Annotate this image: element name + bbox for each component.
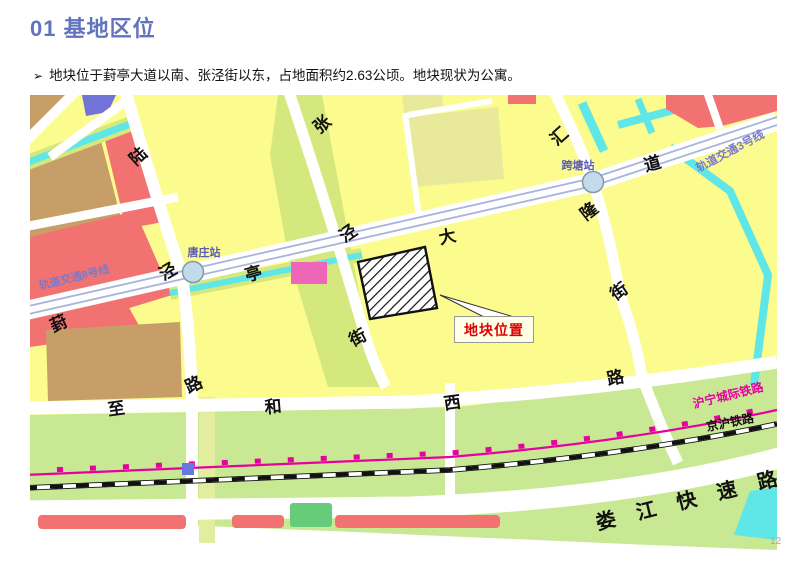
station-kuatang-label: 跨塘站 [562, 157, 595, 173]
purple-block-small [182, 463, 194, 475]
page-number: 12 [770, 536, 781, 547]
bullet-text: ➢地块位于葑亭大道以南、张泾街以东，占地面积约2.63公顷。地块现状为公寓。 [33, 64, 521, 84]
bullet-body: 地块位于葑亭大道以南、张泾街以东，占地面积约2.63公顷。地块现状为公寓。 [49, 68, 521, 83]
street-char: 和 [263, 392, 282, 418]
station-kuatang-icon [583, 172, 604, 193]
station-tangzhuang-label: 唐庄站 [188, 244, 221, 260]
street-char: 至 [106, 393, 126, 420]
site-location-map: 陆 泾 路 张 泾 街 汇 隆 街 葑 亭 大 道 至 和 西 路 唐庄站 跨塘… [30, 95, 777, 550]
page-title: 01 基地区位 [30, 11, 156, 43]
salmon-block [38, 515, 186, 529]
pink-block [291, 262, 327, 284]
station-tangzhuang-icon [183, 262, 204, 283]
green-block [290, 503, 332, 527]
tan-block-south [46, 322, 182, 401]
callout-box: 地块位置 [454, 316, 534, 343]
bullet-marker-icon: ➢ [33, 69, 43, 83]
callout-label: 地块位置 [464, 320, 524, 340]
street-char: 西 [442, 387, 462, 414]
